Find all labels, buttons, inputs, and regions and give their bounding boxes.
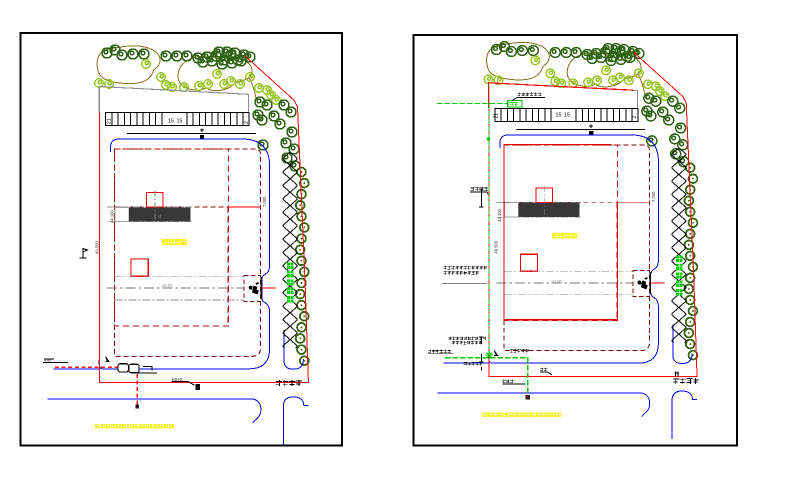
svg-text:49.500: 49.500 (95, 241, 100, 254)
svg-text:±0.00: ±0.00 (551, 279, 563, 284)
svg-text:15: 15 (168, 118, 174, 124)
svg-text:44.100: 44.100 (109, 210, 114, 223)
svg-text:15: 15 (177, 118, 183, 124)
svg-text:2: 2 (244, 121, 250, 124)
svg-text:K0+0: K0+0 (172, 377, 183, 382)
svg-text:4.00: 4.00 (44, 359, 51, 363)
svg-text:7.000: 7.000 (262, 196, 267, 207)
svg-text:15: 15 (556, 113, 562, 119)
svg-text:2: 2 (632, 116, 638, 119)
svg-text:d: d (159, 214, 162, 219)
svg-text:15: 15 (564, 113, 570, 119)
svg-text:44.100: 44.100 (497, 208, 502, 221)
svg-text:49.500: 49.500 (494, 240, 499, 253)
svg-text:7.000: 7.000 (651, 191, 656, 202)
svg-text:±0.00: ±0.00 (162, 283, 174, 288)
svg-text:21: 21 (494, 113, 500, 119)
svg-text:21: 21 (107, 118, 113, 124)
